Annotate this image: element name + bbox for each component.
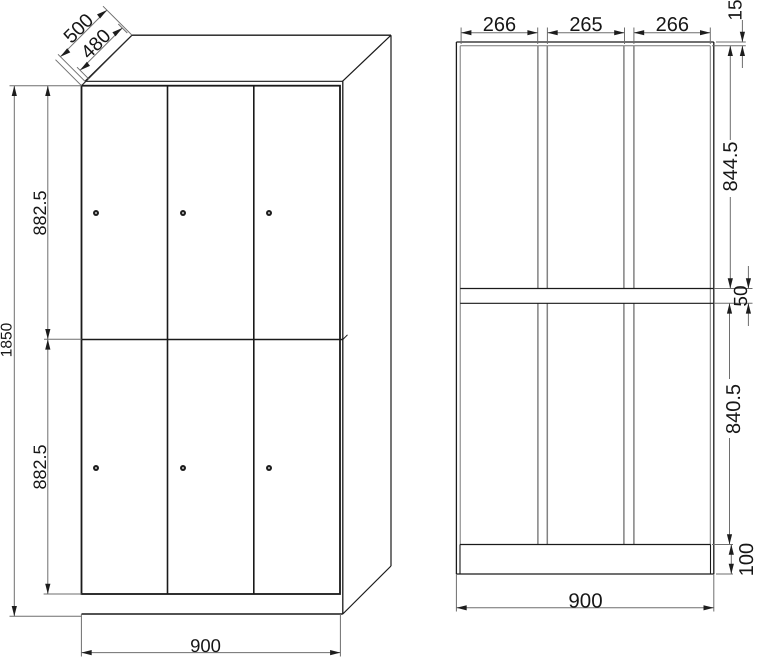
svg-text:900: 900 (190, 635, 221, 656)
svg-text:100: 100 (736, 543, 757, 576)
svg-text:266: 266 (656, 14, 689, 36)
svg-text:900: 900 (568, 589, 602, 612)
svg-text:50: 50 (731, 285, 752, 306)
svg-text:265: 265 (569, 14, 602, 36)
svg-text:266: 266 (483, 14, 516, 36)
svg-text:844.5: 844.5 (720, 141, 742, 191)
svg-text:882.5: 882.5 (30, 444, 50, 489)
svg-text:882.5: 882.5 (30, 190, 50, 235)
svg-text:840.5: 840.5 (723, 384, 745, 434)
svg-text:15: 15 (725, 0, 746, 21)
svg-text:1850: 1850 (0, 322, 16, 357)
